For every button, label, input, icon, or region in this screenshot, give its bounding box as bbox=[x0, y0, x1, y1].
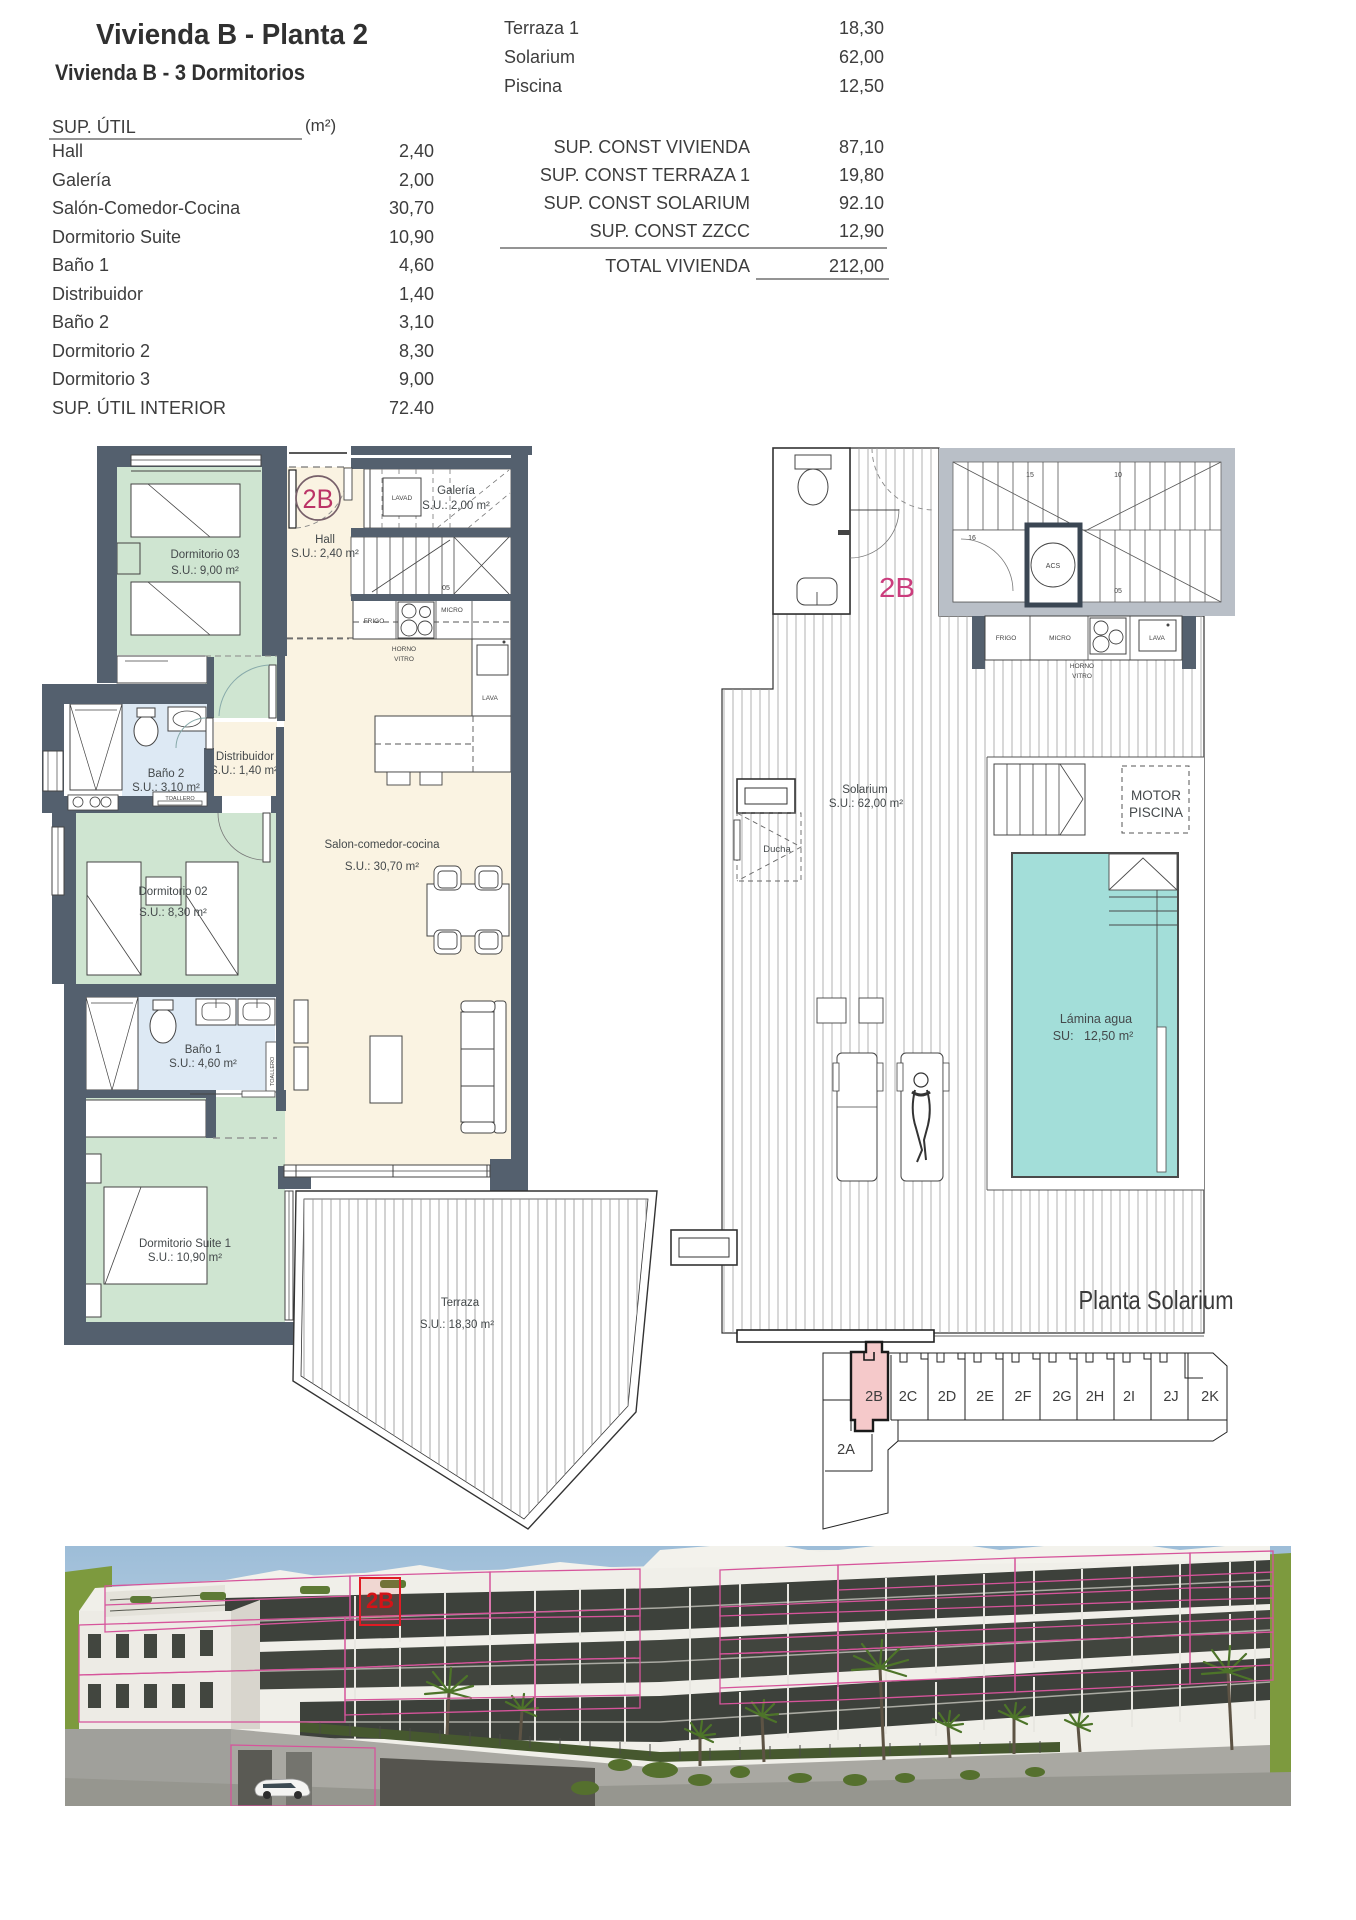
svg-text:FRIGO: FRIGO bbox=[364, 618, 385, 625]
svg-text:18,30: 18,30 bbox=[839, 18, 884, 38]
svg-text:S.U.: 10,90 m²: S.U.: 10,90 m² bbox=[148, 1252, 222, 1264]
svg-text:2,00: 2,00 bbox=[399, 170, 434, 190]
svg-text:S.U.: 62,00 m²: S.U.: 62,00 m² bbox=[829, 798, 903, 810]
svg-text:9,00: 9,00 bbox=[399, 369, 434, 389]
svg-text:2J: 2J bbox=[1163, 1389, 1178, 1405]
svg-text:Dormitorio 2: Dormitorio 2 bbox=[52, 341, 150, 361]
svg-text:S.U.: 2,00 m²: S.U.: 2,00 m² bbox=[422, 500, 490, 512]
svg-text:SUP. CONST ZZCC: SUP. CONST ZZCC bbox=[590, 221, 750, 241]
svg-text:2C: 2C bbox=[899, 1389, 918, 1405]
svg-text:2I: 2I bbox=[1123, 1389, 1135, 1405]
svg-text:Hall: Hall bbox=[52, 141, 83, 161]
svg-text:S.U.: 9,00 m²: S.U.: 9,00 m² bbox=[171, 565, 239, 577]
svg-text:8,30: 8,30 bbox=[399, 341, 434, 361]
svg-text:SU: 12,50 m²: SU: 12,50 m² bbox=[1053, 1029, 1134, 1043]
svg-text:Dormitorio 3: Dormitorio 3 bbox=[52, 369, 150, 389]
svg-text:Terraza: Terraza bbox=[441, 1297, 480, 1309]
svg-text:12,50: 12,50 bbox=[839, 76, 884, 96]
svg-text:S.U.: 2,40 m²: S.U.: 2,40 m² bbox=[291, 548, 359, 560]
svg-text:2B: 2B bbox=[303, 484, 334, 514]
svg-text:(m²): (m²) bbox=[305, 116, 336, 135]
svg-text:62,00: 62,00 bbox=[839, 47, 884, 67]
svg-text:TOTAL VIVIENDA: TOTAL VIVIENDA bbox=[605, 256, 750, 276]
svg-text:2B: 2B bbox=[366, 1588, 394, 1613]
svg-text:05: 05 bbox=[1114, 588, 1122, 595]
svg-text:Baño 2: Baño 2 bbox=[148, 768, 184, 780]
svg-text:HORNO: HORNO bbox=[392, 646, 416, 653]
svg-text:Terraza 1: Terraza 1 bbox=[504, 18, 579, 38]
svg-text:87,10: 87,10 bbox=[839, 137, 884, 157]
svg-text:2F: 2F bbox=[1015, 1389, 1032, 1405]
svg-text:10,90: 10,90 bbox=[389, 227, 434, 247]
svg-text:2K: 2K bbox=[1201, 1389, 1219, 1405]
svg-text:2B: 2B bbox=[879, 572, 915, 603]
svg-text:HORNO: HORNO bbox=[1070, 663, 1094, 670]
svg-text:15: 15 bbox=[1026, 472, 1034, 479]
svg-text:19,80: 19,80 bbox=[839, 165, 884, 185]
svg-text:ACS: ACS bbox=[1046, 563, 1061, 570]
svg-text:Dormitorio Suite 1: Dormitorio Suite 1 bbox=[139, 1238, 231, 1250]
svg-text:212,00: 212,00 bbox=[829, 256, 884, 276]
svg-text:S.U.: 8,30 m²: S.U.: 8,30 m² bbox=[139, 907, 207, 919]
svg-text:2,40: 2,40 bbox=[399, 141, 434, 161]
svg-text:FRIGO: FRIGO bbox=[996, 635, 1017, 642]
svg-text:30,70: 30,70 bbox=[389, 198, 434, 218]
svg-text:SUP. ÚTIL INTERIOR: SUP. ÚTIL INTERIOR bbox=[52, 397, 226, 418]
svg-text:Salon-comedor-cocina: Salon-comedor-cocina bbox=[324, 839, 440, 851]
svg-text:Baño 1: Baño 1 bbox=[52, 255, 109, 275]
svg-text:72.40: 72.40 bbox=[389, 398, 434, 418]
svg-text:Dormitorio Suite: Dormitorio Suite bbox=[52, 227, 181, 247]
svg-text:Vivienda B - 3 Dormitorios: Vivienda B - 3 Dormitorios bbox=[55, 60, 305, 85]
svg-text:SUP. CONST VIVIENDA: SUP. CONST VIVIENDA bbox=[554, 137, 750, 157]
svg-text:4,60: 4,60 bbox=[399, 255, 434, 275]
svg-text:VITRO: VITRO bbox=[394, 656, 414, 663]
svg-text:Piscina: Piscina bbox=[504, 76, 563, 96]
svg-text:S.U.: 18,30 m²: S.U.: 18,30 m² bbox=[420, 1319, 494, 1331]
svg-text:MOTOR: MOTOR bbox=[1131, 788, 1181, 803]
svg-text:SUP. CONST SOLARIUM: SUP. CONST SOLARIUM bbox=[544, 193, 750, 213]
svg-text:92.10: 92.10 bbox=[839, 193, 884, 213]
svg-text:SUP. ÚTIL: SUP. ÚTIL bbox=[52, 116, 136, 137]
svg-text:Distribuidor: Distribuidor bbox=[216, 751, 274, 763]
svg-text:12,90: 12,90 bbox=[839, 221, 884, 241]
svg-text:Galería: Galería bbox=[437, 485, 475, 497]
svg-text:LAVA: LAVA bbox=[1149, 635, 1165, 642]
svg-text:S.U.: 4,60 m²: S.U.: 4,60 m² bbox=[169, 1058, 237, 1070]
svg-text:3,10: 3,10 bbox=[399, 312, 434, 332]
svg-text:16: 16 bbox=[968, 535, 976, 542]
svg-text:Distribuidor: Distribuidor bbox=[52, 284, 143, 304]
svg-text:Vivienda B - Planta 2: Vivienda B - Planta 2 bbox=[96, 19, 368, 51]
svg-text:Dormitorio 02: Dormitorio 02 bbox=[138, 886, 207, 898]
svg-text:Salón-Comedor-Cocina: Salón-Comedor-Cocina bbox=[52, 198, 241, 218]
svg-text:2B: 2B bbox=[865, 1389, 883, 1405]
svg-text:2E: 2E bbox=[976, 1389, 994, 1405]
svg-text:MICRO: MICRO bbox=[441, 607, 463, 614]
svg-text:PISCINA: PISCINA bbox=[1129, 805, 1183, 820]
svg-text:MICRO: MICRO bbox=[1049, 635, 1071, 642]
svg-text:Dormitorio 03: Dormitorio 03 bbox=[170, 549, 239, 561]
svg-text:S.U.: 30,70 m²: S.U.: 30,70 m² bbox=[345, 861, 419, 873]
svg-text:Solarium: Solarium bbox=[504, 47, 575, 67]
svg-text:2A: 2A bbox=[837, 1442, 855, 1458]
svg-text:S.U.: 1,40 m²: S.U.: 1,40 m² bbox=[210, 765, 278, 777]
svg-text:Hall: Hall bbox=[315, 534, 335, 546]
svg-text:Planta Solarium: Planta Solarium bbox=[1079, 1285, 1234, 1315]
svg-text:Lámina agua: Lámina agua bbox=[1060, 1012, 1132, 1026]
svg-text:Baño 2: Baño 2 bbox=[52, 312, 109, 332]
svg-text:Ducha: Ducha bbox=[763, 844, 791, 855]
svg-text:1,40: 1,40 bbox=[399, 284, 434, 304]
svg-text:2G: 2G bbox=[1052, 1389, 1071, 1405]
svg-text:LAVAD: LAVAD bbox=[392, 495, 413, 502]
svg-text:LAVA: LAVA bbox=[482, 695, 498, 702]
svg-text:2D: 2D bbox=[938, 1389, 957, 1405]
svg-text:10: 10 bbox=[1114, 472, 1122, 479]
svg-text:VITRO: VITRO bbox=[1072, 673, 1092, 680]
svg-text:2H: 2H bbox=[1086, 1389, 1105, 1405]
svg-text:Solarium: Solarium bbox=[842, 784, 887, 796]
svg-text:TOALLERO: TOALLERO bbox=[270, 1056, 276, 1086]
svg-text:Baño 1: Baño 1 bbox=[185, 1044, 221, 1056]
svg-text:Galería: Galería bbox=[52, 170, 112, 190]
svg-text:05: 05 bbox=[442, 585, 450, 592]
svg-text:SUP. CONST TERRAZA 1: SUP. CONST TERRAZA 1 bbox=[540, 165, 750, 185]
